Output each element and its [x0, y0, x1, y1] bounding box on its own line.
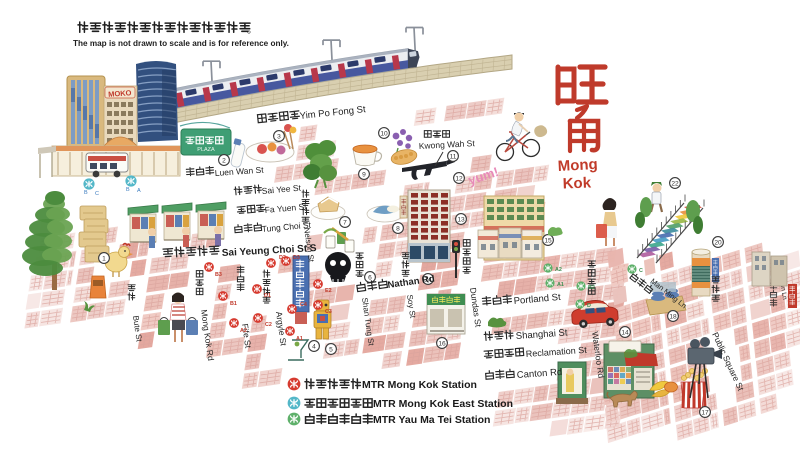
svg-text:2: 2 — [222, 157, 226, 164]
svg-text:17: 17 — [701, 409, 709, 416]
svg-text:22: 22 — [671, 180, 679, 187]
svg-text:。: 。 — [247, 25, 257, 36]
svg-text:14: 14 — [621, 329, 629, 336]
svg-text:A1: A1 — [557, 282, 564, 288]
svg-text:C3: C3 — [325, 309, 332, 315]
svg-text:E2: E2 — [325, 288, 332, 294]
svg-text:MTR Mong Kok Station: MTR Mong Kok Station — [362, 379, 477, 391]
svg-text:D: D — [587, 303, 591, 309]
svg-text:A2: A2 — [240, 328, 247, 334]
svg-text:8: 8 — [396, 225, 400, 232]
svg-text:10: 10 — [380, 130, 388, 137]
svg-text:13: 13 — [457, 216, 465, 223]
svg-text:C: C — [639, 268, 643, 274]
svg-text:18: 18 — [669, 313, 677, 320]
svg-text:B: B — [126, 187, 130, 193]
svg-text:16: 16 — [438, 340, 446, 347]
svg-text:B2: B2 — [588, 285, 595, 291]
svg-text:7: 7 — [343, 219, 347, 226]
svg-text:5: 5 — [329, 346, 333, 353]
svg-text:B1: B1 — [230, 301, 237, 307]
svg-text:12: 12 — [455, 175, 463, 182]
svg-text:MTR Yau Ma Tei Station: MTR Yau Ma Tei Station — [373, 414, 490, 426]
svg-text:C2: C2 — [265, 322, 272, 328]
svg-text:4: 4 — [312, 343, 316, 350]
svg-text:PLAZA: PLAZA — [197, 147, 215, 153]
svg-text:15: 15 — [544, 237, 552, 244]
svg-text:1: 1 — [102, 255, 106, 262]
svg-text:A2: A2 — [555, 267, 562, 273]
svg-text:D1: D1 — [264, 293, 271, 299]
svg-text:The map is not drawn to scale: The map is not drawn to scale and is for… — [73, 39, 289, 48]
svg-text:C: C — [95, 191, 99, 197]
svg-text:D3: D3 — [293, 255, 300, 261]
svg-text:B3: B3 — [215, 272, 222, 278]
svg-text:MTR Mong Kok East Station: MTR Mong Kok East Station — [373, 398, 513, 410]
svg-text:B: B — [84, 190, 88, 196]
svg-text:Mong: Mong — [557, 156, 598, 175]
svg-text:20: 20 — [714, 239, 722, 246]
svg-text:A: A — [137, 188, 141, 194]
svg-text:3: 3 — [277, 133, 281, 140]
svg-text:C4: C4 — [300, 302, 307, 308]
svg-text:A1: A1 — [296, 336, 303, 342]
svg-text:11: 11 — [450, 153, 457, 160]
svg-text:MOKO: MOKO — [108, 88, 132, 99]
svg-text:Kok: Kok — [562, 174, 592, 192]
svg-text:9: 9 — [362, 171, 366, 178]
